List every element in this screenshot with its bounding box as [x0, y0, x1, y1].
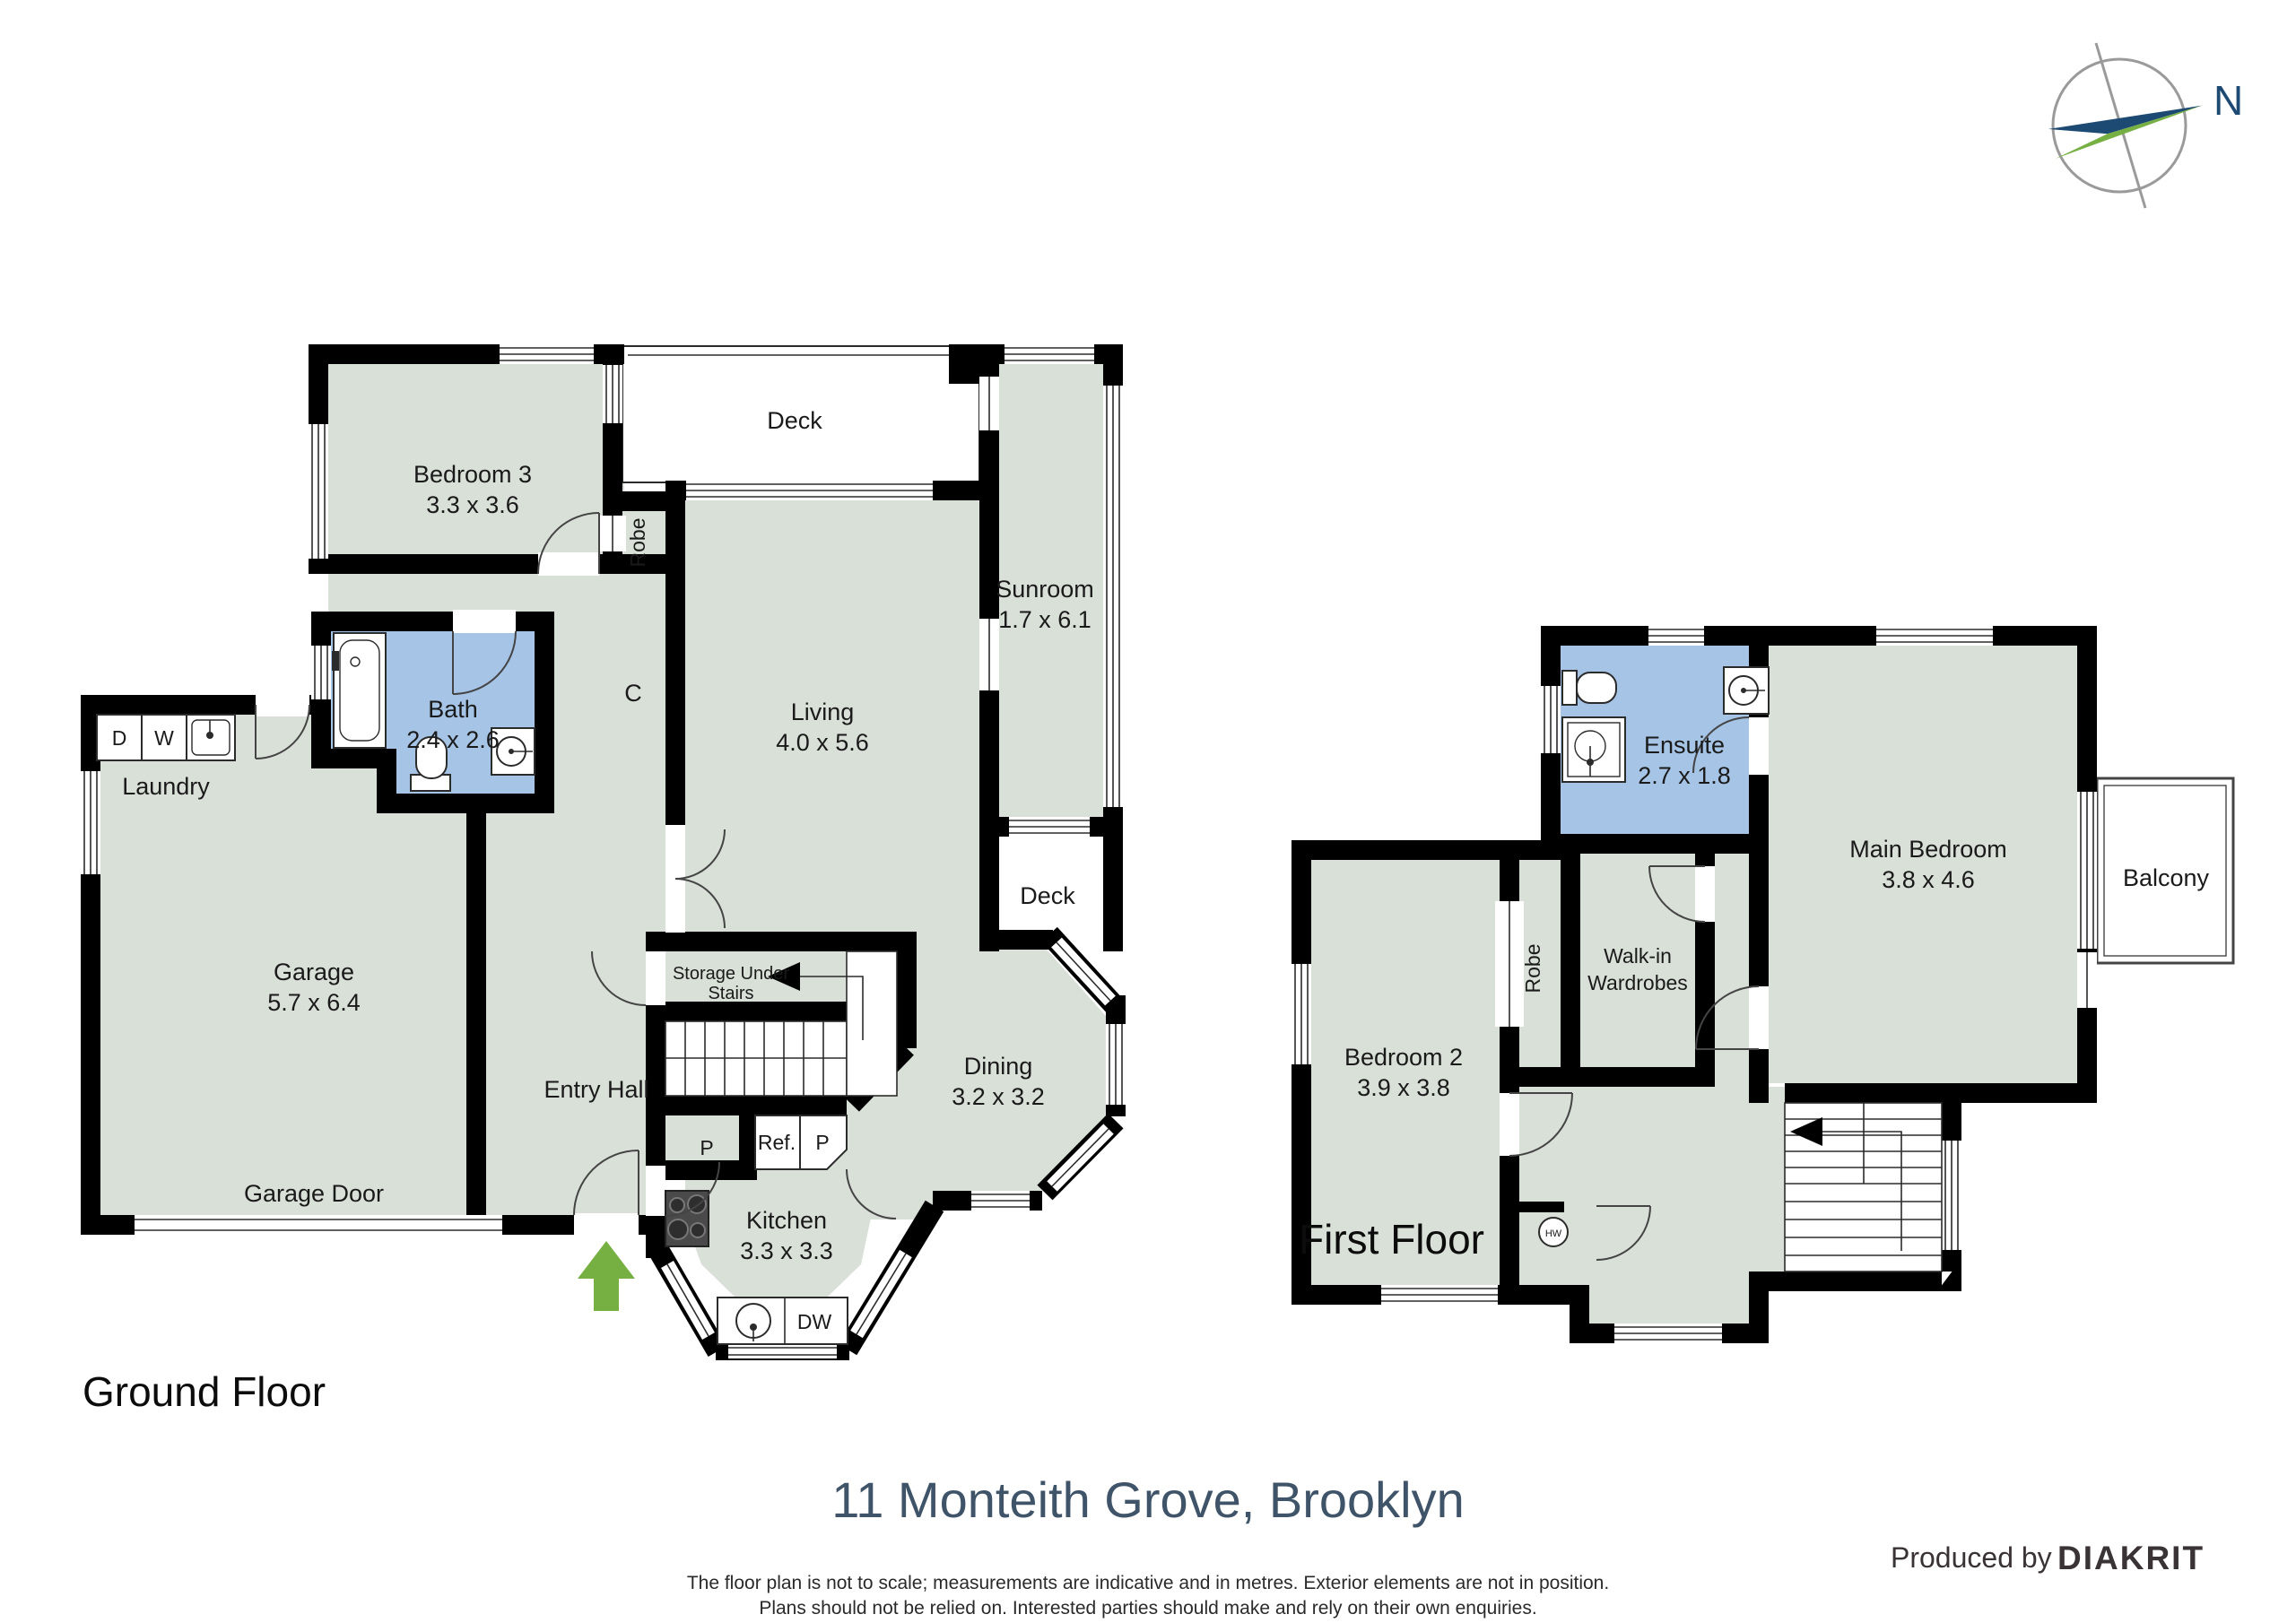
- label-pantry1: P: [700, 1136, 713, 1159]
- label-storage-2: Stairs: [708, 984, 753, 1003]
- label-washer: W: [154, 726, 174, 750]
- disclaimer-line1: The floor plan is not to scale; measurem…: [687, 1573, 1609, 1593]
- ground-floor-title: Ground Floor: [83, 1368, 326, 1415]
- hot-water-unit: HW: [1539, 1218, 1568, 1246]
- label-pantry2: P: [815, 1131, 829, 1154]
- footer: 11 Monteith Grove, Brooklyn The floor pl…: [687, 1471, 2205, 1619]
- label-garage-door: Garage Door: [244, 1180, 384, 1207]
- basin-icon-f: [1724, 667, 1769, 714]
- diakrit-logo: DIAKRIT: [2057, 1540, 2205, 1576]
- label-bath: Bath: [428, 696, 478, 723]
- label-dining-dims: 3.2 x 3.2: [952, 1083, 1045, 1110]
- label-dining: Dining: [964, 1053, 1033, 1080]
- label-bedroom3: Bedroom 3: [413, 461, 532, 488]
- label-living: Living: [791, 699, 855, 725]
- label-deck-right: Deck: [1020, 882, 1075, 909]
- label-robe-g: Robe: [626, 518, 649, 568]
- bathtub-icon: [332, 633, 386, 748]
- label-bedroom3-dims: 3.3 x 3.6: [426, 491, 519, 518]
- laundry-sink-icon: [187, 715, 235, 760]
- label-fridge: Ref.: [758, 1131, 796, 1154]
- label-closet-c: C: [624, 680, 642, 707]
- label-storage-1: Storage Under: [673, 964, 789, 984]
- disclaimer-line2: Plans should not be relied on. Intereste…: [759, 1598, 1536, 1619]
- floorplan-canvas: Bedroom 3 3.3 x 3.6 Deck Sunroom 1.7 x 6…: [0, 0, 2296, 1623]
- floorplan-page: Bedroom 3 3.3 x 3.6 Deck Sunroom 1.7 x 6…: [0, 0, 2296, 1623]
- label-dishwasher: DW: [797, 1310, 832, 1333]
- first-floor-title: First Floor: [1299, 1216, 1484, 1263]
- label-robe-f: Robe: [1521, 944, 1544, 994]
- label-laundry: Laundry: [122, 773, 210, 800]
- label-kitchen: Kitchen: [746, 1207, 827, 1234]
- stairs-first: [1785, 1103, 1942, 1271]
- label-ensuite: Ensuite: [1644, 732, 1725, 759]
- robe-sliding-door-g: [599, 516, 626, 551]
- room-main-bedroom: [1769, 646, 2077, 1083]
- label-walkin-1: Walk-in: [1604, 944, 1672, 968]
- hall-mid: [554, 612, 665, 813]
- label-bedroom2-dims: 3.9 x 3.8: [1357, 1074, 1450, 1101]
- property-title: 11 Monteith Grove, Brooklyn: [831, 1471, 1465, 1528]
- label-living-dims: 4.0 x 5.6: [776, 729, 869, 756]
- stove-icon: [665, 1191, 709, 1246]
- compass-icon: N: [2048, 43, 2243, 208]
- label-main-bedroom: Main Bedroom: [1849, 836, 2007, 863]
- label-garage: Garage: [274, 959, 354, 985]
- label-main-bedroom-dims: 3.8 x 4.6: [1882, 866, 1975, 893]
- hall-corridor-f: [1715, 854, 1749, 1087]
- label-hw: HW: [1545, 1228, 1562, 1239]
- label-garage-dims: 5.7 x 6.4: [267, 989, 361, 1016]
- shower-icon: [1562, 717, 1625, 782]
- compass-north-label: N: [2213, 77, 2243, 124]
- label-walkin-2: Wardrobes: [1587, 971, 1688, 994]
- hall-upper: [328, 574, 665, 612]
- hall-f-lower: [1589, 1285, 1749, 1324]
- ground-floor-plan: Bedroom 3 3.3 x 3.6 Deck Sunroom 1.7 x 6…: [81, 344, 1126, 1415]
- label-bedroom2: Bedroom 2: [1344, 1044, 1463, 1071]
- label-dryer: D: [112, 726, 127, 750]
- entry-arrow-icon: [578, 1241, 635, 1311]
- label-sunroom: Sunroom: [996, 576, 1094, 603]
- robe-sliding-door-f: [1495, 901, 1524, 1027]
- label-sunroom-dims: 1.7 x 6.1: [998, 606, 1091, 633]
- label-balcony: Balcony: [2123, 864, 2210, 891]
- label-bath-dims: 2.4 x 2.6: [406, 726, 500, 753]
- hall-f: [1519, 1087, 1785, 1285]
- toilet-icon-f: [1562, 671, 1616, 705]
- label-entry-hall: Entry Hall: [544, 1076, 648, 1103]
- label-ensuite-dims: 2.7 x 1.8: [1638, 762, 1731, 789]
- first-floor-plan: HW Ensuite 2.7 x 1.8 Main Bedroom 3.8 x …: [1291, 626, 2233, 1343]
- label-kitchen-dims: 3.3 x 3.3: [740, 1237, 833, 1264]
- produced-by-text: Produced by: [1891, 1541, 2052, 1574]
- label-deck-top: Deck: [767, 407, 822, 434]
